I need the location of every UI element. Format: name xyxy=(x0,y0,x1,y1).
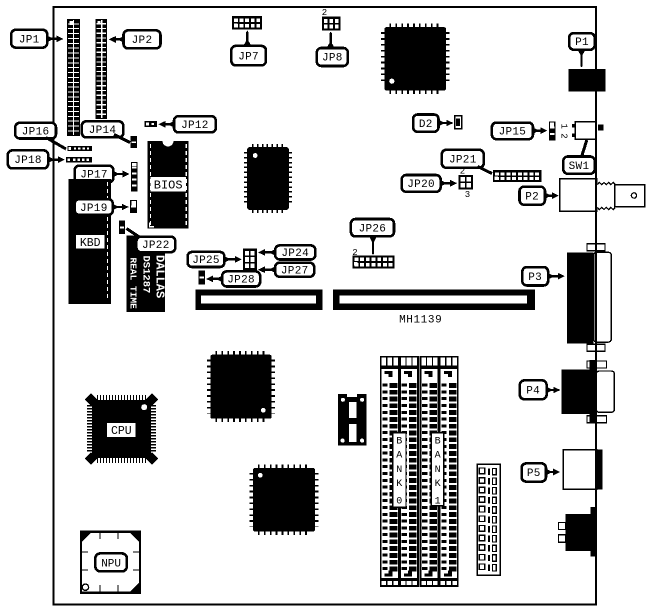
svg-text:K: K xyxy=(435,479,441,490)
svg-text:KBD: KBD xyxy=(80,237,101,250)
svg-text:JP2: JP2 xyxy=(132,35,153,47)
svg-text:B: B xyxy=(435,437,441,448)
svg-text:JP8: JP8 xyxy=(322,53,343,65)
svg-text:JP26: JP26 xyxy=(359,223,387,235)
svg-text:JP20: JP20 xyxy=(407,179,435,191)
svg-text:JP12: JP12 xyxy=(181,120,209,132)
svg-text:B: B xyxy=(396,437,402,448)
svg-text:P3: P3 xyxy=(528,272,542,284)
svg-text:JP28: JP28 xyxy=(227,275,255,287)
svg-text:P2: P2 xyxy=(525,191,539,203)
svg-text:N: N xyxy=(396,465,402,476)
svg-text:JP1: JP1 xyxy=(19,34,40,46)
svg-text:BIOS: BIOS xyxy=(154,179,183,193)
svg-text:2: 2 xyxy=(559,133,569,138)
svg-text:MH1139: MH1139 xyxy=(399,315,442,327)
svg-text:2: 2 xyxy=(460,167,465,177)
svg-text:JP27: JP27 xyxy=(281,266,309,278)
svg-text:P1: P1 xyxy=(575,37,589,49)
svg-text:JP21: JP21 xyxy=(449,155,477,167)
svg-text:REAL TIME: REAL TIME xyxy=(128,258,139,310)
svg-text:2: 2 xyxy=(322,8,327,18)
svg-text:JP24: JP24 xyxy=(281,248,309,260)
svg-text:JP22: JP22 xyxy=(142,240,170,252)
svg-text:JP7: JP7 xyxy=(238,51,259,63)
svg-text:D2: D2 xyxy=(419,119,433,131)
svg-text:1: 1 xyxy=(435,496,441,507)
svg-text:JP18: JP18 xyxy=(14,155,42,167)
svg-text:DALLAS: DALLAS xyxy=(153,255,167,298)
svg-text:3: 3 xyxy=(465,190,470,200)
svg-text:K: K xyxy=(396,479,402,490)
svg-text:JP19: JP19 xyxy=(80,203,108,215)
svg-text:2: 2 xyxy=(352,248,357,258)
svg-text:JP14: JP14 xyxy=(89,125,117,137)
svg-text:JP15: JP15 xyxy=(499,127,527,139)
svg-text:NPU: NPU xyxy=(101,559,121,571)
svg-text:N: N xyxy=(435,465,441,476)
svg-text:0: 0 xyxy=(396,496,402,507)
svg-text:A: A xyxy=(396,451,402,462)
svg-text:CPU: CPU xyxy=(111,425,132,438)
svg-text:1: 1 xyxy=(559,124,569,129)
svg-text:DS1287: DS1287 xyxy=(140,256,152,294)
svg-text:P4: P4 xyxy=(526,386,540,398)
svg-text:JP25: JP25 xyxy=(192,255,220,267)
svg-text:JP16: JP16 xyxy=(22,126,50,138)
svg-text:A: A xyxy=(435,451,441,462)
svg-text:P5: P5 xyxy=(527,468,541,480)
svg-text:SW1: SW1 xyxy=(569,161,590,173)
